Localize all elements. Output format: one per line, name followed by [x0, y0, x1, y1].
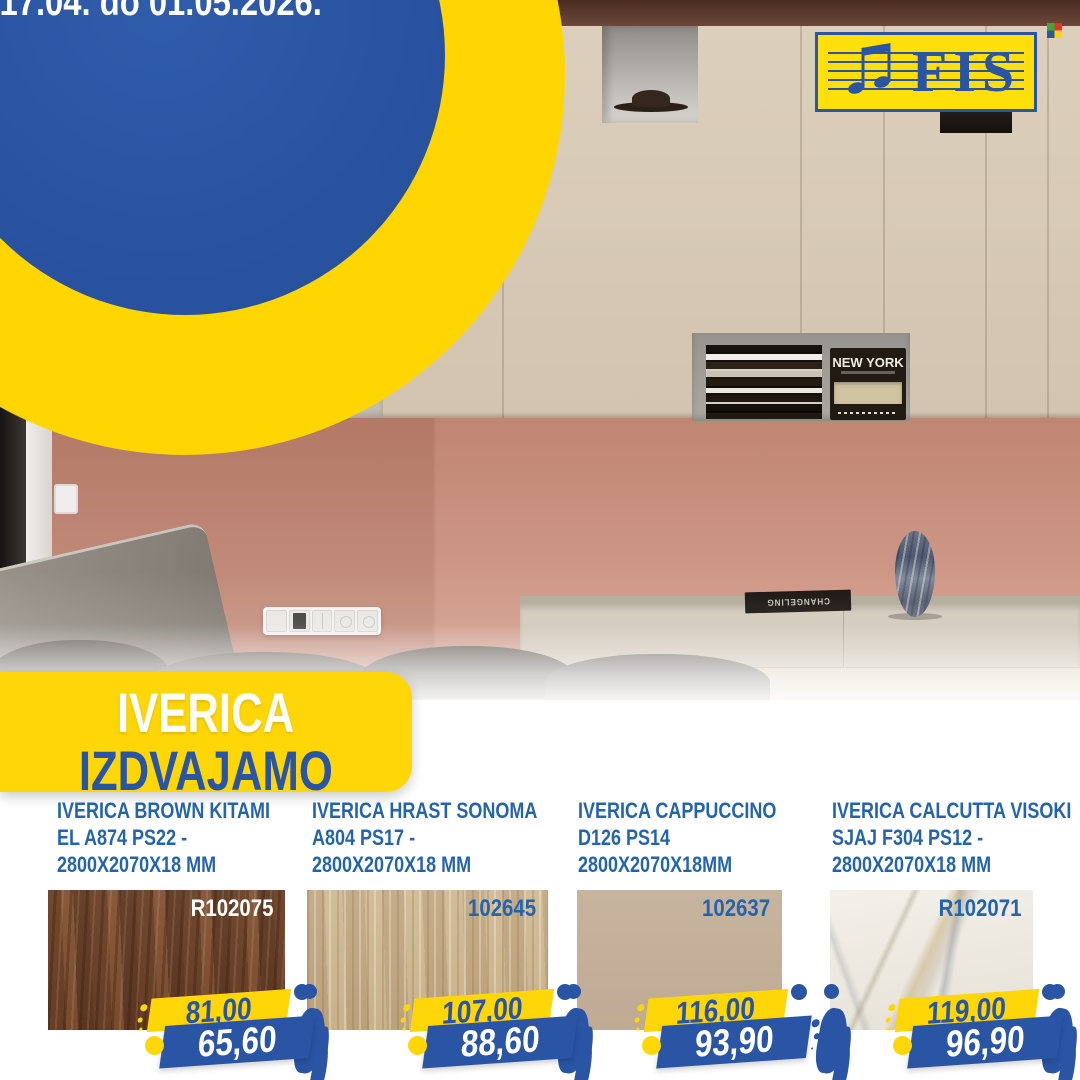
yellow-dot: [145, 1036, 164, 1055]
product-name: IVERICA CALCUTTA VISOKI SJAJ F304 PS12 -…: [832, 797, 1080, 878]
wall-switch: [54, 484, 78, 514]
product-name: IVERICA BROWN KITAMI EL A874 PS22 - 2800…: [57, 797, 323, 878]
yellow-dot: [408, 1036, 427, 1055]
hat-object: [614, 102, 688, 112]
blue-dot: [557, 984, 573, 1000]
color-registration-mark-icon: [1047, 23, 1062, 38]
book-pages: [834, 382, 902, 404]
hat-niche: [602, 26, 698, 123]
blue-dot: [1042, 984, 1058, 1000]
product-name: IVERICA HRAST SONOMA A804 PS17 - 2800X20…: [312, 797, 594, 878]
books-niche: NEW YORK: [692, 333, 910, 421]
book-stack: [706, 345, 822, 419]
banner-category: IVERICA: [117, 680, 294, 745]
product-code: 102637: [702, 895, 770, 923]
new-york-book: NEW YORK: [830, 348, 906, 420]
price-tag: 116,00 93,90: [634, 988, 819, 1076]
banner-subtitle: IZDVAJAMO: [79, 745, 333, 797]
fis-logo: FIS: [815, 32, 1037, 112]
blue-dot: [294, 984, 310, 1000]
product-code: R102075: [190, 895, 273, 923]
promo-dates: od 17.04. do 01.05.2026.: [0, 0, 322, 25]
cabinet-seam: [1047, 26, 1049, 418]
blue-dot: [791, 984, 807, 1000]
book-footer-text: [838, 412, 898, 414]
product-code: R102071: [938, 895, 1021, 923]
fis-logo-text: FIS: [904, 37, 1028, 105]
section-banner: IVERICA IZDVAJAMO: [0, 672, 412, 792]
yellow-dot: [893, 1036, 912, 1055]
paint-splatter: [818, 984, 864, 1080]
book-subtitle-line: [841, 371, 894, 374]
product-code: 102645: [468, 895, 536, 923]
promo-flyer: NEW YORK CHANGELING: [0, 0, 1080, 1080]
book-spine-title: NEW YORK: [830, 355, 906, 370]
product-name: IVERICA CAPPUCCINO D126 PS14 2800X2070X1…: [578, 797, 826, 878]
yellow-dot: [642, 1036, 661, 1055]
